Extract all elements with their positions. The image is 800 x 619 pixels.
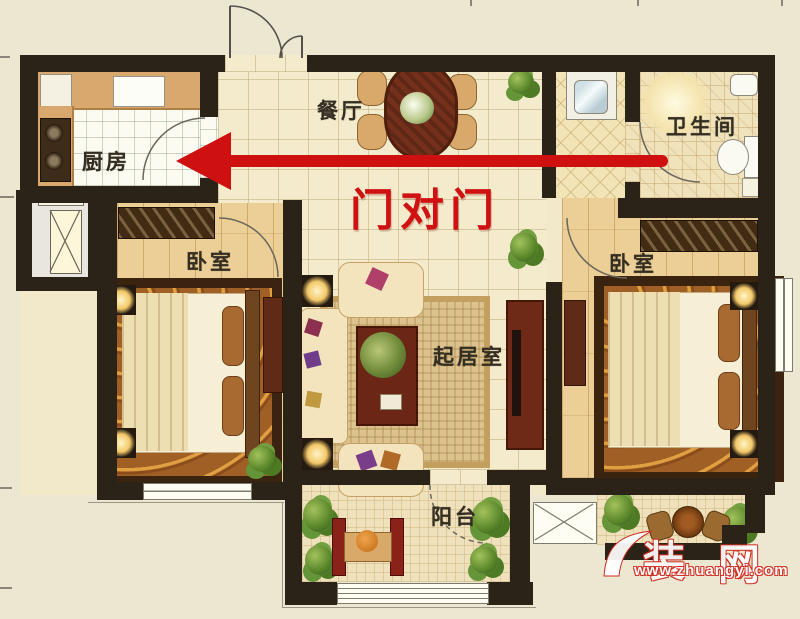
door-to-door-annotation: 门对门 [350, 174, 500, 238]
balcony-label: 阳台 [431, 501, 479, 531]
bathroom-label: 卫生间 [666, 111, 738, 141]
bedroom-right-label: 卧室 [609, 248, 657, 278]
entry-door-arc-right [280, 36, 302, 58]
bedroom-left-label: 卧室 [186, 246, 234, 276]
door-to-door-arrow-shaft [222, 155, 668, 167]
plan-linework [0, 0, 800, 619]
kitchen-label: 厨房 [82, 146, 130, 176]
watermark-brand-left: 装 [643, 528, 685, 589]
floor-plan: 厨房 餐厅 卫生间 卧室 起居室 卧室 阳台 门对门 装 网 www.zhuan… [0, 0, 800, 619]
dining-label: 餐厅 [317, 95, 365, 125]
living-label: 起居室 [433, 341, 505, 371]
watermark-url: www.zhuangyi.com [634, 562, 789, 579]
door-to-door-arrow-head [176, 132, 231, 190]
entry-door-arc-left [230, 6, 282, 58]
